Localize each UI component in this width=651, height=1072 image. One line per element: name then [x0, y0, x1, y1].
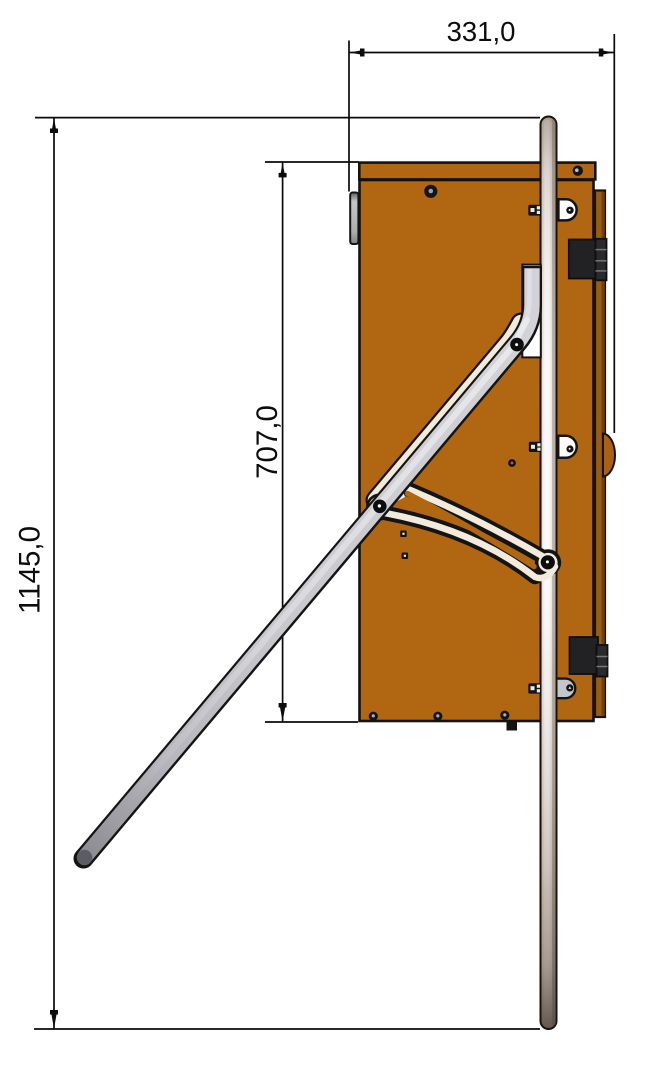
svg-text:707,0: 707,0 — [251, 405, 284, 479]
svg-text:331,0: 331,0 — [447, 16, 516, 47]
svg-text:1145,0: 1145,0 — [14, 526, 47, 614]
